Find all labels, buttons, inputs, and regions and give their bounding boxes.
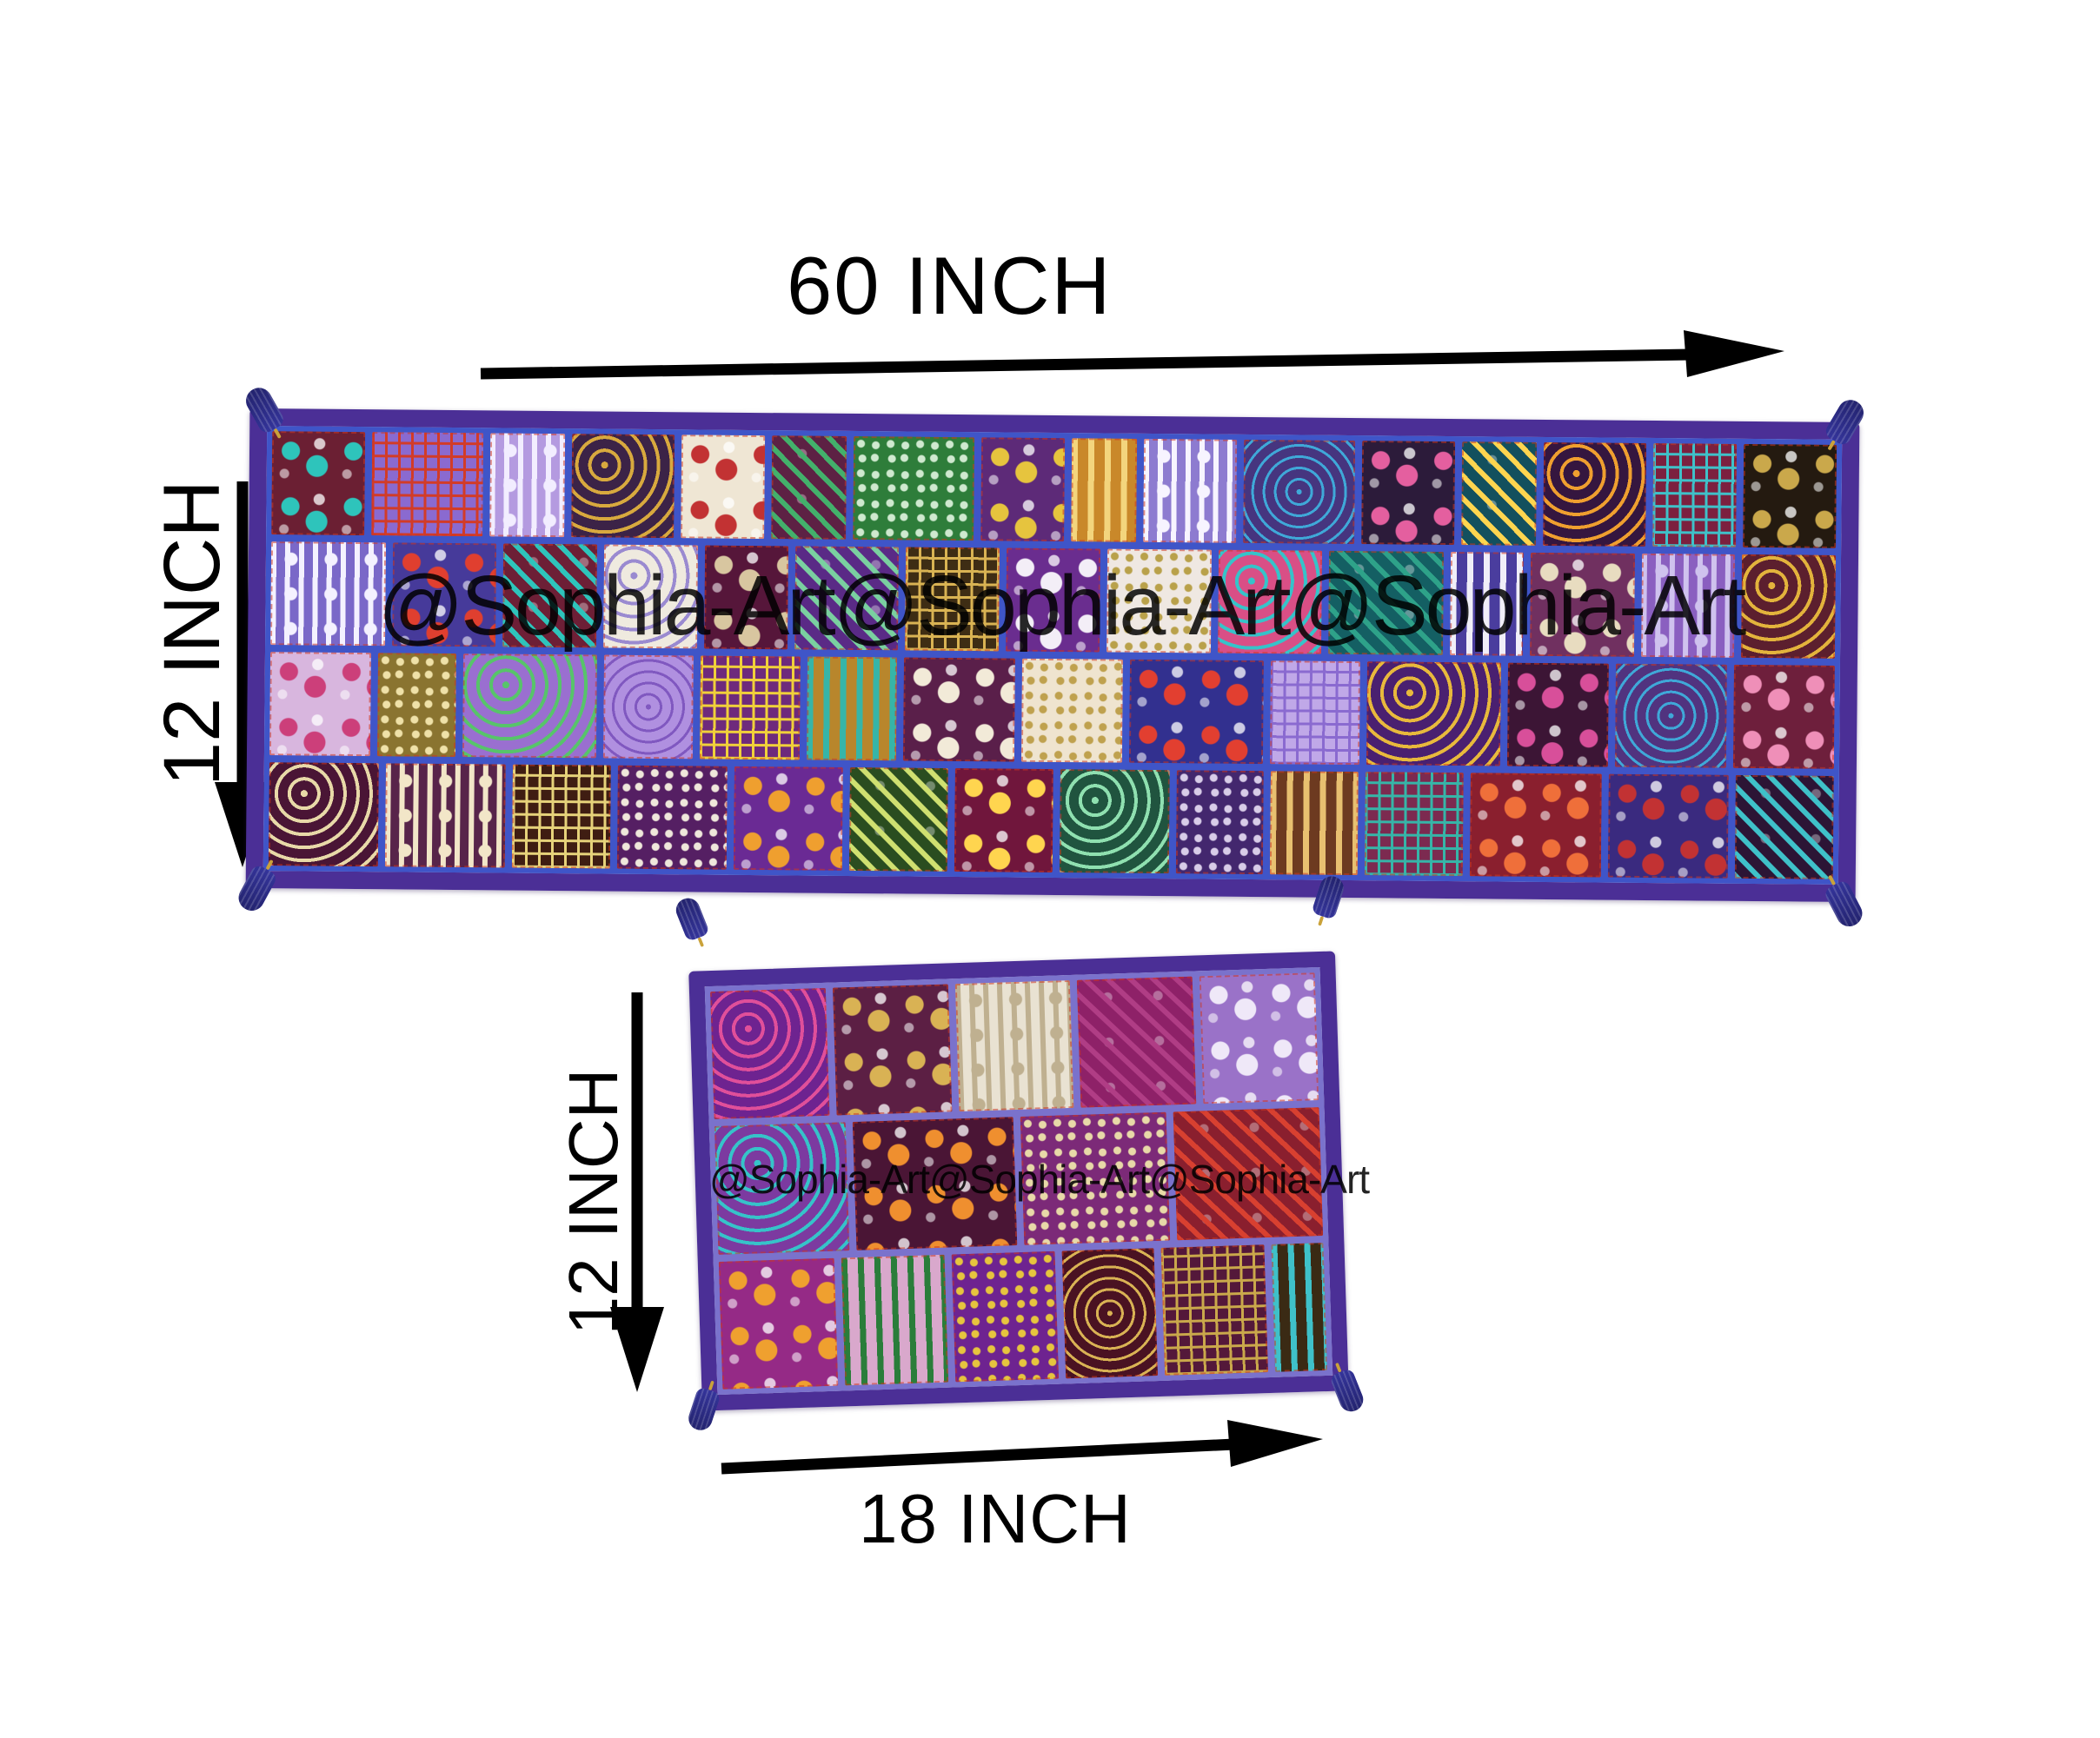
fabric-patch	[1270, 771, 1359, 875]
tassel-cord	[1318, 916, 1324, 926]
fabric-patch	[1129, 660, 1264, 764]
tassel-skirt	[1823, 879, 1867, 931]
fabric-patch	[951, 1250, 1059, 1382]
fabric-patch	[490, 433, 566, 537]
fabric-patch	[269, 762, 379, 866]
fabric-patch	[1077, 977, 1196, 1108]
fabric-patch	[903, 658, 1016, 762]
fabric-patch	[954, 980, 1073, 1111]
patch-row	[271, 431, 1837, 548]
product-image: 60 INCH 12 INCH @Sophia-Art@Sophia-Art@S…	[0, 0, 2100, 1738]
tassel-cord	[1827, 440, 1836, 450]
fabric-patch	[384, 763, 505, 867]
fabric-patch	[371, 432, 483, 536]
tassel-cord	[698, 937, 705, 947]
fabric-patch	[1062, 1248, 1159, 1379]
fabric-patch	[719, 1257, 838, 1389]
fabric-patch	[771, 435, 847, 540]
fabric-patch	[1060, 769, 1170, 873]
fabric-patch	[1652, 443, 1737, 547]
fabric-patch	[1470, 773, 1602, 877]
fabric-patch	[853, 436, 974, 541]
fabric-patch	[1143, 439, 1237, 543]
top-width-arrow	[474, 323, 1795, 401]
runner-small-height-arrow	[598, 987, 678, 1397]
fabric-patch	[1507, 663, 1609, 767]
fabric-patch	[603, 654, 694, 759]
fabric-patch	[1366, 661, 1501, 766]
fabric-patch	[617, 766, 728, 870]
fabric-patch	[833, 984, 952, 1115]
tassel-cord	[273, 428, 281, 439]
fabric-patch	[699, 655, 801, 760]
fabric-patch	[980, 437, 1065, 541]
tassel-skirt	[242, 383, 287, 435]
fabric-patch	[571, 434, 675, 538]
fabric-patch	[1071, 438, 1137, 542]
tassel	[1818, 395, 1868, 456]
fabric-patch	[1243, 440, 1355, 544]
fabric-patch	[1270, 660, 1360, 765]
patch-row	[710, 972, 1319, 1119]
fabric-patch	[841, 1254, 948, 1385]
fabric-patch	[1543, 442, 1646, 547]
fabric-patch	[954, 768, 1053, 872]
tassel-skirt	[1823, 395, 1868, 448]
fabric-patch	[1615, 664, 1728, 768]
fabric-patch	[271, 431, 365, 535]
fabric-patch	[1741, 554, 1836, 659]
fabric-patch	[849, 767, 948, 872]
fabric-patch	[462, 653, 597, 758]
fabric-patch	[269, 652, 371, 756]
fabric-patch	[1021, 659, 1123, 763]
fabric-patch	[1362, 441, 1456, 545]
fabric-patch	[1272, 1243, 1327, 1372]
patch-row	[719, 1243, 1327, 1390]
fabric-patch	[1733, 665, 1835, 769]
patch-row	[269, 762, 1834, 879]
fabric-patch	[377, 653, 456, 757]
tassel	[242, 383, 292, 444]
bottom-width-arrow	[714, 1415, 1328, 1484]
tassel-skirt	[1329, 1368, 1366, 1416]
tassel	[1326, 1358, 1366, 1415]
top-width-label: 60 INCH	[787, 245, 1112, 327]
patchwork-grid-large	[263, 426, 1842, 885]
fabric-patch	[1743, 444, 1837, 548]
fabric-patch	[733, 766, 843, 871]
fabric-patch	[1365, 772, 1464, 876]
fabric-patch	[512, 765, 611, 869]
tassel	[673, 894, 714, 951]
fabric-patch	[1735, 775, 1834, 879]
fabric-patch	[270, 541, 386, 646]
tassel	[1818, 870, 1866, 932]
fabric-patch	[710, 988, 829, 1119]
fabric-patch	[1176, 770, 1265, 874]
fabric-patch	[681, 434, 765, 539]
fabric-patch	[1200, 972, 1319, 1104]
table-runner-large	[246, 408, 1860, 902]
fabric-patch	[1607, 774, 1728, 879]
fabric-patch	[1462, 441, 1538, 546]
fabric-patch	[807, 657, 897, 761]
fabric-patch	[1161, 1244, 1269, 1376]
tassel-skirt	[673, 894, 710, 942]
bottom-width-label: 18 INCH	[859, 1484, 1132, 1554]
watermark-text: @Sophia-Art@Sophia-Art@Sophia-Art	[709, 1159, 1369, 1199]
watermark-text: @Sophia-Art@Sophia-Art@Sophia-Art	[378, 563, 1744, 647]
patch-row	[269, 652, 1835, 769]
